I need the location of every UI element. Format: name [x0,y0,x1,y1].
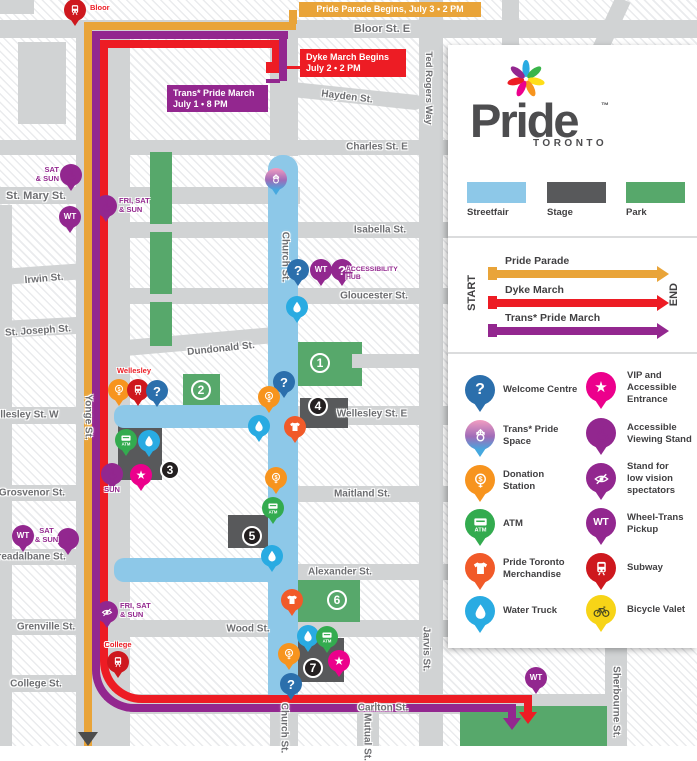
street-label: St. Mary St. [6,190,66,202]
marker-5-stage: 5 [242,526,262,546]
vip-pin: ★ [130,464,152,494]
lowvision-pin [96,601,118,631]
vip-pin: ★ [328,650,350,680]
march-arrow-head [657,323,669,339]
street-bay-st [0,205,12,746]
route-direction-arrow [78,732,98,746]
march-arrow-start [488,267,497,280]
water-icon [301,629,315,643]
pin-label: Bloor [90,4,110,13]
legend-swatch-stage [547,182,606,203]
pin-label: SAT & SUN [33,527,60,544]
street-label: Sherbourne St. [611,666,622,738]
street-label: Irwin St. [24,272,64,286]
merch-icon [471,559,490,578]
street-label: Grenville St. [17,622,75,633]
logo-subtitle: TORONTO [533,138,607,149]
donation-pin-icon: $ [465,465,495,495]
water-pin [138,430,160,460]
atm-pin: ATM [465,509,495,549]
vip-pin-icon: ★ [130,464,152,486]
merch-pin-icon [465,553,495,583]
subway-pin [64,0,86,29]
pin-label: SUN [101,486,123,495]
atm-pin: ATM [115,429,137,459]
welcome-pin: ? [465,375,495,415]
svg-text:ATM: ATM [323,638,332,643]
zone-park [150,232,172,294]
panel-divider [448,352,697,354]
svg-text:ATM: ATM [269,509,278,514]
welcome-pin-icon: ? [287,259,309,281]
trans-pin-icon [465,420,495,450]
accessible-pin-icon [60,164,82,186]
subway-icon [131,383,145,397]
street-label: Wellesley St. E [337,409,407,420]
water-pin [286,296,308,326]
merch-icon [285,593,299,607]
marker-1-park: 1 [310,353,330,373]
atm-pin-icon: ATM [115,429,137,451]
legend-swatch-streetfair [467,182,526,203]
merch-pin [284,416,306,446]
street-block-bloor-yonge [18,42,66,124]
wt-pin: WT [59,206,81,236]
legend-item-label: Subway [627,562,663,574]
donation-pin-icon: $ [278,643,300,665]
street-label: Isabella St. [354,225,406,236]
street-label: Grosvenor St. [0,488,65,499]
atm-pin-icon: ATM [316,626,338,648]
welcome-icon: ? [280,376,288,389]
marker-2-park: 2 [191,380,211,400]
atm-icon: ATM [119,433,133,447]
wt-pin-icon: WT [525,667,547,689]
wt-pin: WT [310,259,332,289]
water-icon [265,549,279,563]
water-pin [248,415,270,445]
welcome-pin-icon: ? [280,673,302,695]
route-pride-parade [289,10,297,24]
route-trans-pride-march [92,31,100,645]
legend-item-label: VIP and Accessible Entrance [627,370,677,406]
subway-pin-icon [586,553,616,583]
route-dyke-march [100,40,280,48]
water-icon [252,419,266,433]
subway-pin-icon [64,0,86,21]
water-pin [465,596,495,636]
pin-label: FRI, SAT & SUN [120,602,151,619]
zone-park [150,302,172,346]
water-pin-icon [261,545,283,567]
donation-icon: $ [282,647,296,661]
subway-icon [592,559,611,578]
svg-text:ATM: ATM [122,441,131,446]
accessible-pin-icon [57,528,79,550]
street-label: Wellesley St. W [0,410,59,421]
street-label: Wood St. [226,624,269,635]
street-label: Charles St. E [346,142,408,153]
vip-icon: ★ [594,380,607,395]
march-arrow-bar [497,299,657,307]
subway-pin [586,553,616,593]
legend-swatch-label: Streetfair [467,207,509,218]
trans-icon [471,426,490,445]
marker-7-stage: 7 [303,658,323,678]
hub-icon: ? [338,264,346,277]
route-dyke-march [524,695,532,713]
merch-pin-icon [281,589,303,611]
accessible-pin [586,418,616,458]
bike-icon [592,601,611,620]
vip-icon: ★ [334,655,345,667]
march-label: Trans* Pride March [505,312,600,324]
accessible-pin [95,195,117,225]
welcome-icon: ? [294,264,302,277]
svg-text:$: $ [478,474,483,483]
water-pin-icon [465,596,495,626]
panel-divider [448,236,697,238]
subway-icon [111,655,125,669]
legend-item-label: Wheel-Trans Pickup [627,512,684,536]
legend-item-label: Stand for low vision spectators [627,461,675,497]
donation-pin: $ [258,386,280,416]
street-label: Bloor St. E [354,23,410,35]
route-trans-pride-march [92,31,288,39]
route-pride-parade [84,22,296,30]
donation-icon: $ [471,471,490,490]
end-label: END [668,283,680,306]
accessible-pin [57,528,79,558]
welcome-pin-icon: ? [146,380,168,402]
legend-item-label: ATM [503,518,523,530]
vip-pin: ★ [586,372,616,412]
donation-pin: $ [278,643,300,673]
route-trans-pride-march [279,31,287,81]
street-label: Gloucester St. [340,291,408,302]
wt-pin-icon: WT [12,525,34,547]
atm-pin: ATM [262,497,284,527]
march-arrow-head [657,295,669,311]
lowvision-pin-icon [96,601,118,623]
pride-flower-logo-icon [506,58,546,98]
accessible-pin-icon [586,418,616,448]
legend-swatch-label: Park [626,207,647,218]
accessible-icon [592,424,611,443]
street-block-northwest [0,0,34,14]
atm-icon: ATM [320,630,334,644]
march-label: Pride Parade [505,255,569,267]
legend-swatch-park [626,182,685,203]
accessible-icon [61,532,75,546]
march-arrow-bar [497,327,657,335]
street-label: Carlton St. [358,703,409,714]
legend-item-label: Welcome Centre [503,384,577,396]
subway-icon [68,3,82,17]
merch-icon [288,420,302,434]
route-trans-pride-march [136,704,516,712]
banner-pride-parade-begins: Pride Parade Begins, July 3 • 2 PM [299,2,481,17]
route-trans-pride-march [266,79,280,83]
wt-pin-icon: WT [59,206,81,228]
accessible-icon [105,467,119,481]
trans-pin [265,168,287,198]
street-label: Yonge St. [83,394,94,439]
vip-icon: ★ [136,469,147,481]
start-label: START [466,275,478,311]
welcome-pin: ? [280,673,302,703]
zone-street [352,354,420,368]
march-arrow-bar [497,270,657,278]
welcome-icon: ? [475,382,485,398]
donation-icon: $ [269,471,283,485]
water-pin [261,545,283,575]
legend-item-label: Bicycle Valet [627,604,685,616]
wt-icon: WT [593,518,609,528]
accessible-pin-icon [101,463,123,485]
bike-pin [586,595,616,635]
logo-trademark: ™ [601,101,609,110]
route-dyke-march-arrowhead [519,712,537,724]
pin-label: College [98,641,138,650]
accessible-pin-icon [95,195,117,217]
street-label: Jarvis St. [421,627,432,671]
zone-streetfair [114,558,268,582]
bike-pin-icon [586,595,616,625]
donation-pin: $ [465,465,495,505]
wt-icon: WT [17,532,29,540]
march-arrow-start [488,296,497,309]
street-top-street-1 [502,0,519,46]
donation-pin: $ [265,467,287,497]
merch-pin [281,589,303,619]
wt-icon: WT [530,674,542,682]
street-label: Maitland St. [334,489,390,500]
street-label: Alexander St. [308,567,372,578]
march-arrow-head [657,266,669,282]
lowvision-pin-icon [586,463,616,493]
pin-label: SAT & SUN [26,166,59,183]
water-pin-icon [138,430,160,452]
atm-pin-icon: ATM [465,509,495,539]
atm-pin-icon: ATM [262,497,284,519]
welcome-pin: ? [287,259,309,289]
accessible-pin [60,164,82,194]
legend-item-label: Pride Toronto Merchandise [503,557,565,581]
welcome-icon: ? [153,385,161,398]
legend-swatch-label: Stage [547,207,573,218]
trans-pin-icon [265,168,287,190]
vip-pin-icon: ★ [586,372,616,402]
route-dyke-march [100,40,108,637]
legend-item-label: Water Truck [503,605,557,617]
marker-6-park: 6 [327,590,347,610]
zone-park [150,152,172,224]
donation-pin-icon: $ [258,386,280,408]
pin-label: ACCESSIBILITY HUB [346,266,398,282]
merch-pin [465,553,495,593]
banner-trans-pride-march-begins: Trans* Pride March July 1 • 8 PM [167,85,268,112]
wt-icon: WT [64,213,76,221]
march-arrow-start [488,324,497,337]
lowvision-pin [586,463,616,503]
street-label: Ted Rogers Way [423,51,433,124]
wt-icon: WT [315,266,327,274]
marker-3-stage: 3 [160,460,180,480]
subway-pin [107,651,129,681]
pin-label: Wellesley [114,367,154,376]
accessible-icon [99,199,113,213]
welcome-pin-icon: ? [465,375,495,405]
atm-icon: ATM [266,501,280,515]
donation-pin-icon: $ [265,467,287,489]
trans-icon [269,172,283,186]
wt-pin-icon: WT [586,508,616,538]
street-label: Mutual St. [362,713,373,761]
wt-pin: WT [525,667,547,697]
water-pin-icon [286,296,308,318]
wt-pin: WT [586,508,616,548]
welcome-pin: ? [146,380,168,410]
legend-item-label: Donation Station [503,469,544,493]
march-label: Dyke March [505,284,564,296]
route-pride-parade [84,22,92,746]
route-trans-pride-march [508,704,516,719]
lowvision-icon [100,605,114,619]
pin-label: FRI, SAT & SUN [119,197,150,214]
wt-pin: WT [12,525,34,555]
banner-dyke-march-begins: Dyke March Begins July 2 • 2 PM [300,49,406,77]
svg-text:ATM: ATM [474,527,486,533]
street-label: College St. [10,679,62,690]
lowvision-icon [592,469,611,488]
welcome-icon: ? [287,678,295,691]
route-trans-pride-march-arrowhead [503,718,521,730]
subway-pin-icon [107,651,129,673]
wt-pin-icon: WT [310,259,332,281]
atm-icon: ATM [471,515,490,534]
water-icon [142,434,156,448]
route-dyke-march [146,695,532,703]
legend-item-label: Trans* Pride Space [503,424,558,448]
accessible-icon [64,168,78,182]
donation-icon: $ [112,383,126,397]
merch-pin-icon [284,416,306,438]
legend-item-label: Accessible Viewing Stand [627,422,692,446]
water-pin-icon [248,415,270,437]
donation-icon: $ [262,390,276,404]
trans-pin [465,420,495,460]
vip-pin-icon: ★ [328,650,350,672]
marker-4-stage: 4 [308,396,328,416]
water-icon [471,602,490,621]
water-icon [290,300,304,314]
